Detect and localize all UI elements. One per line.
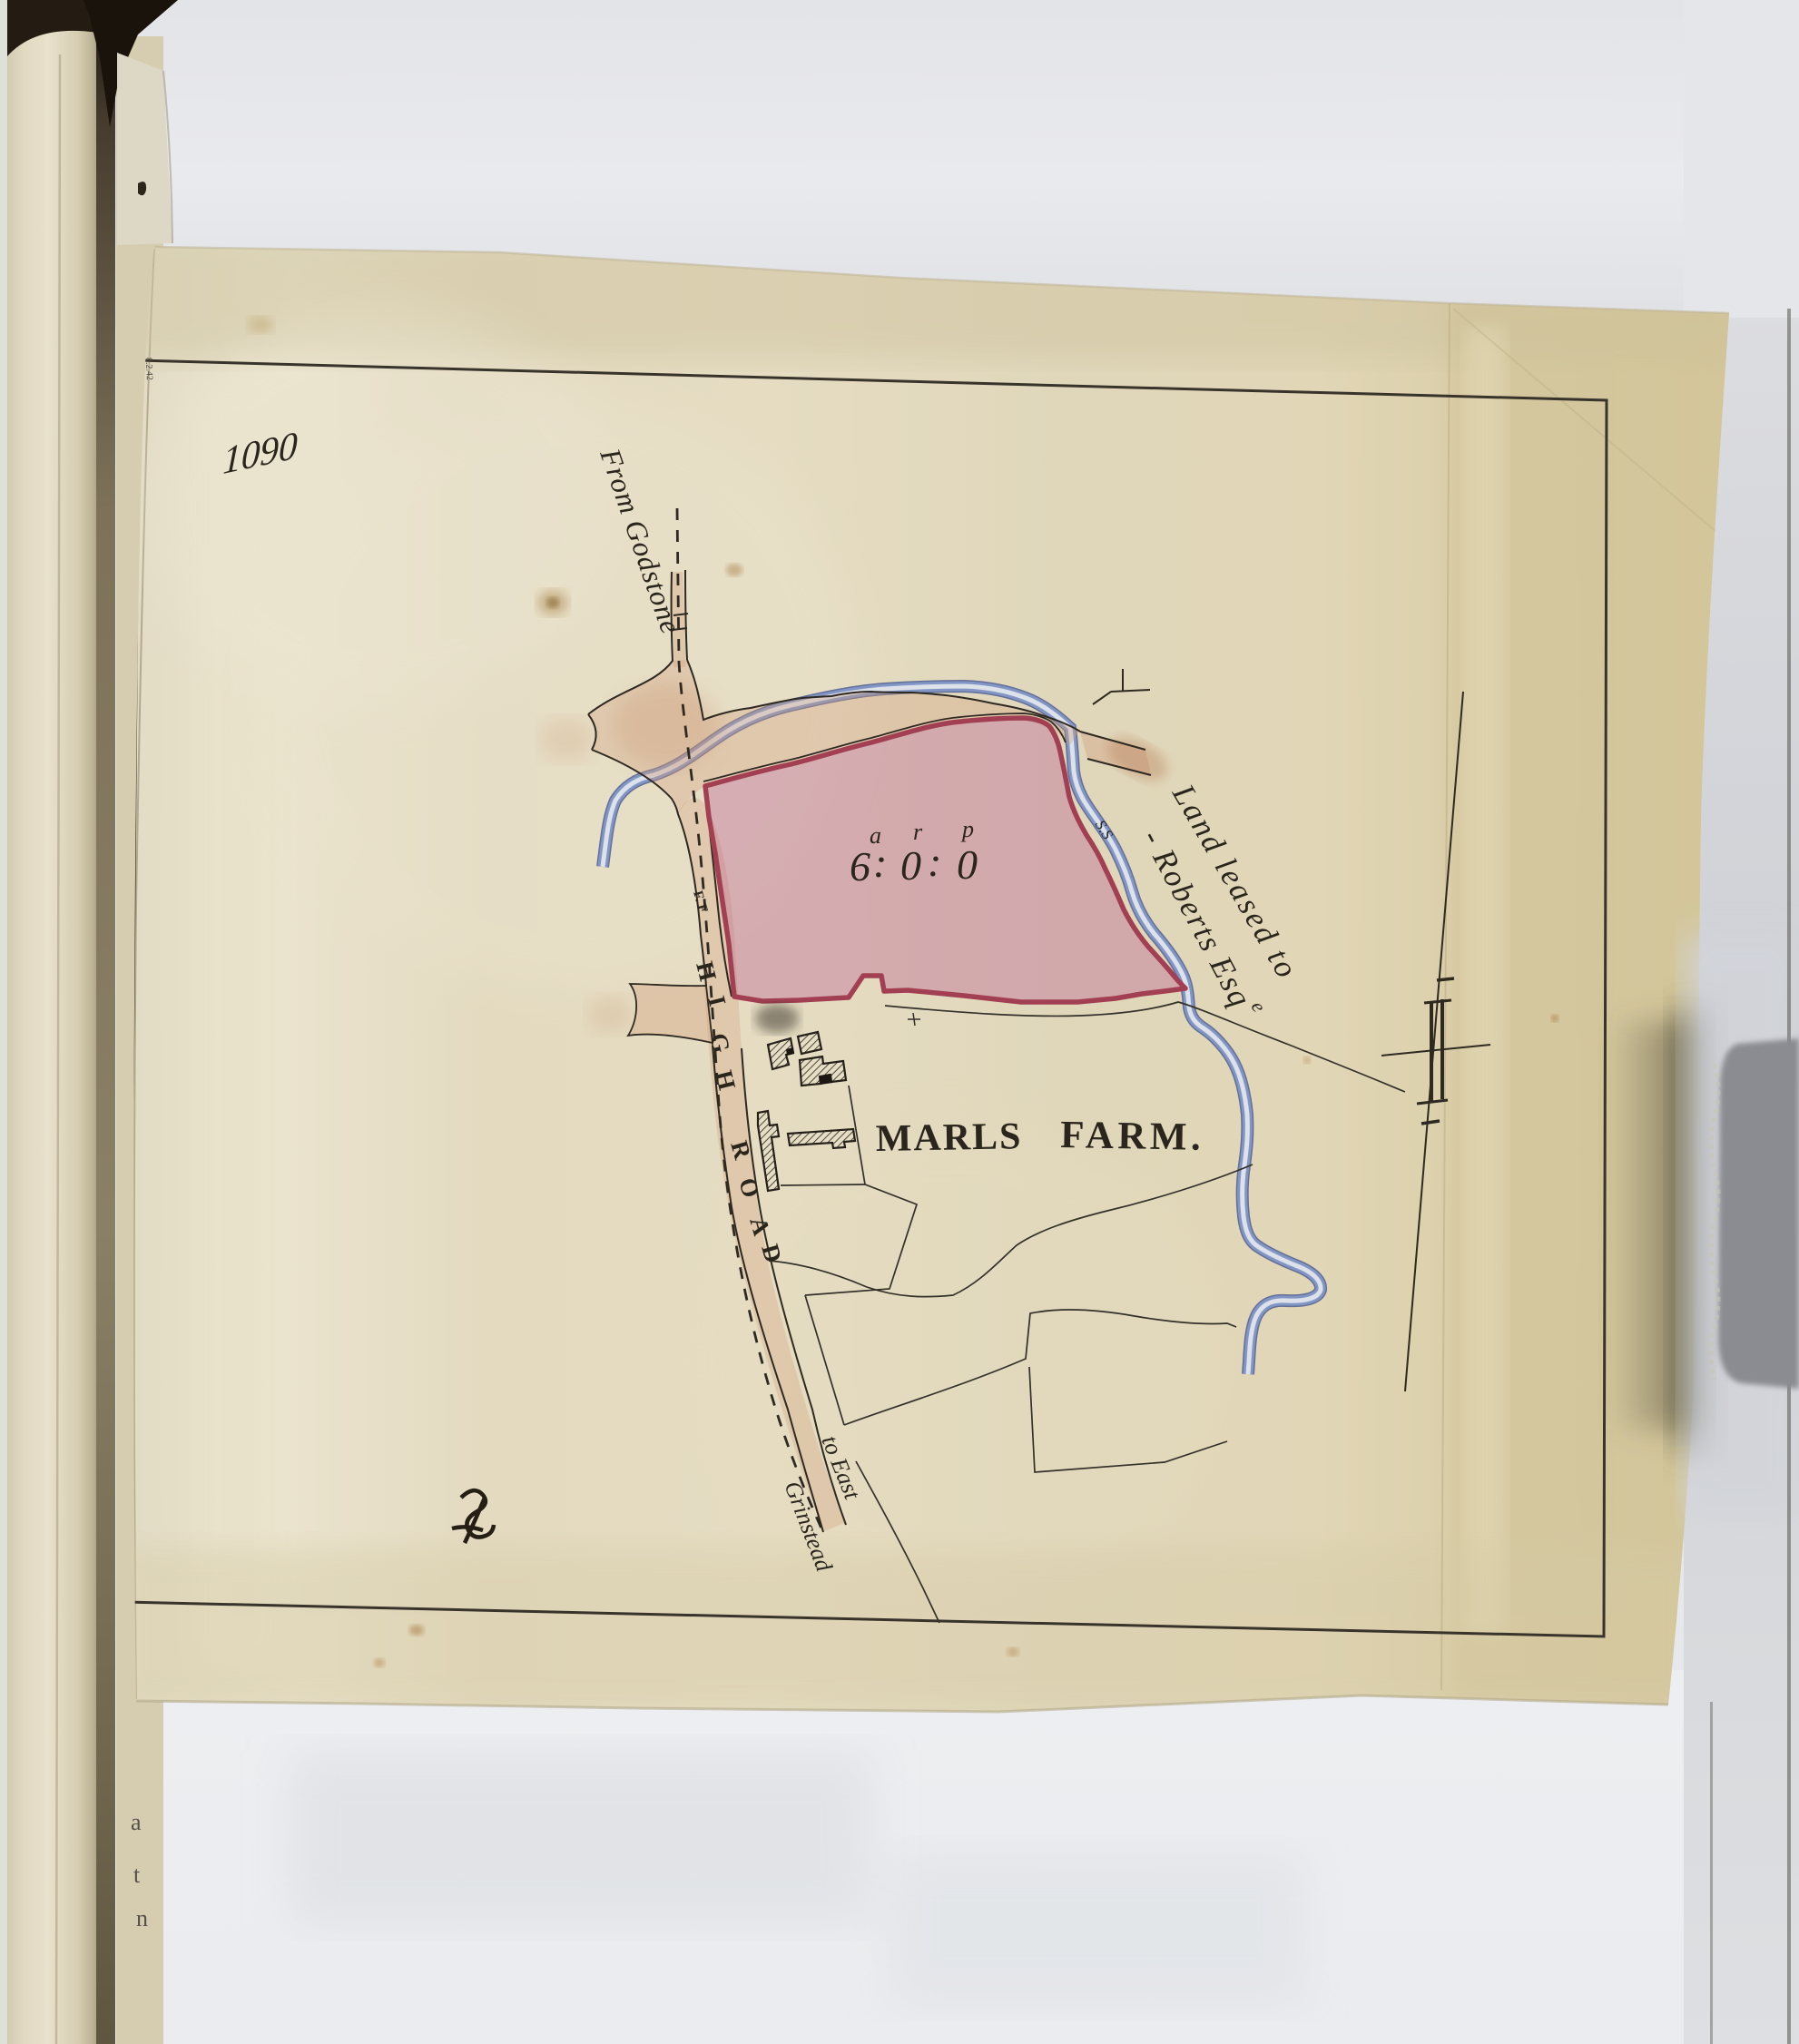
svg-text:FARM.: FARM.	[1060, 1114, 1205, 1159]
svg-text:8.2.42: 8.2.42	[143, 358, 154, 380]
svg-text:p: p	[960, 816, 974, 842]
svg-text:MARLS: MARLS	[875, 1115, 1022, 1160]
svg-text::: :	[873, 840, 887, 886]
svg-text:6: 6	[850, 843, 870, 889]
svg-text:0: 0	[957, 841, 978, 888]
svg-text::: :	[928, 839, 941, 885]
svg-text:r: r	[913, 819, 923, 845]
svg-text:t: t	[133, 1862, 141, 1888]
svg-text:n: n	[136, 1905, 148, 1931]
svg-text:a: a	[131, 1809, 142, 1835]
svg-text:0: 0	[900, 842, 921, 889]
